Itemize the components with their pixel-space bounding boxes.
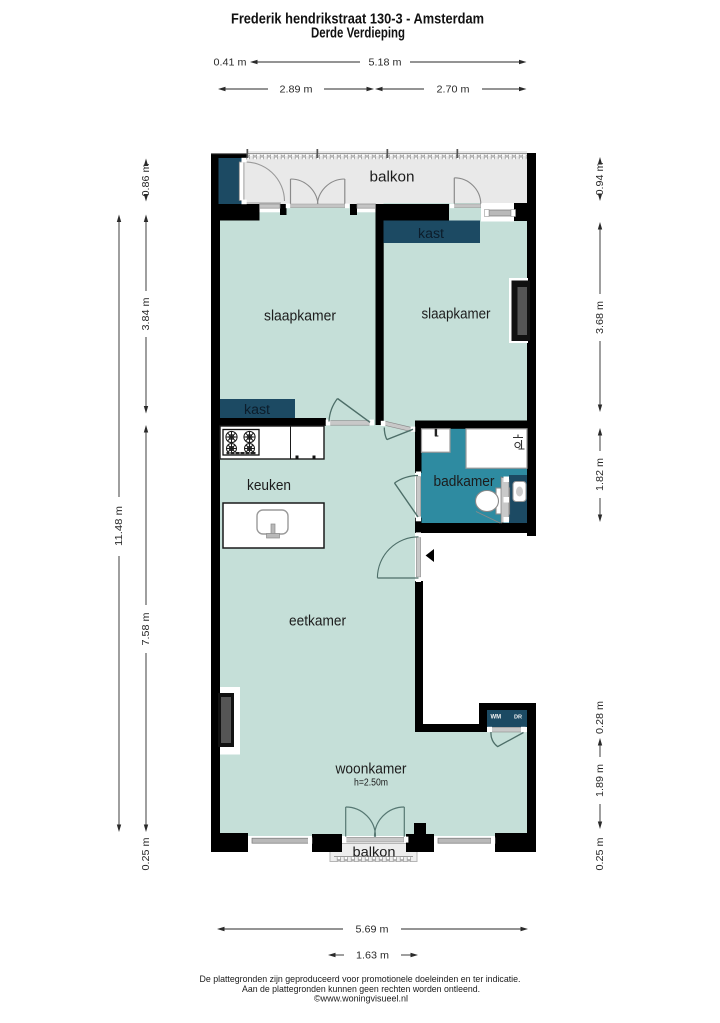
svg-text:balkon: balkon (370, 169, 415, 186)
svg-text:2.89 m: 2.89 m (280, 84, 313, 96)
svg-text:WM: WM (491, 715, 502, 721)
svg-text:2.70 m: 2.70 m (437, 84, 470, 96)
svg-text:1.63 m: 1.63 m (356, 950, 389, 962)
svg-text:3.84 m: 3.84 m (140, 297, 152, 330)
svg-text:©www.woningvisueel.nl: ©www.woningvisueel.nl (314, 994, 408, 1004)
svg-text:De plattegronden zijn geproduc: De plattegronden zijn geproduceerd voor … (200, 974, 521, 984)
svg-text:1.89 m: 1.89 m (594, 764, 606, 797)
svg-text:7.58 m: 7.58 m (140, 612, 152, 645)
svg-text:0.25 m: 0.25 m (140, 837, 152, 870)
svg-text:h=2.50m: h=2.50m (354, 778, 388, 789)
svg-text:badkamer: badkamer (434, 473, 495, 490)
svg-text:woonkamer: woonkamer (335, 761, 407, 778)
svg-text:5.69 m: 5.69 m (356, 924, 389, 936)
svg-text:0.41 m: 0.41 m (214, 57, 247, 69)
svg-text:0.94 m: 0.94 m (594, 162, 606, 195)
svg-text:11.48 m: 11.48 m (113, 506, 125, 546)
svg-text:eetkamer: eetkamer (289, 613, 346, 630)
svg-text:3.68 m: 3.68 m (594, 301, 606, 334)
svg-text:Derde Verdieping: Derde Verdieping (311, 25, 405, 42)
svg-text:slaapkamer: slaapkamer (264, 308, 336, 325)
svg-text:kast: kast (418, 226, 444, 241)
svg-text:DR: DR (514, 715, 522, 721)
svg-text:keuken: keuken (247, 477, 291, 494)
svg-text:0.28 m: 0.28 m (594, 701, 606, 734)
svg-text:0.25 m: 0.25 m (594, 837, 606, 870)
svg-text:balkon: balkon (353, 844, 396, 860)
svg-text:5.18 m: 5.18 m (369, 57, 402, 69)
svg-text:0.86 m: 0.86 m (140, 163, 152, 196)
svg-text:kast: kast (244, 402, 270, 417)
svg-text:Aan de plattegronden kunnen ge: Aan de plattegronden kunnen geen rechten… (242, 984, 480, 994)
svg-text:1.82 m: 1.82 m (594, 458, 606, 491)
svg-text:slaapkamer: slaapkamer (422, 306, 491, 323)
